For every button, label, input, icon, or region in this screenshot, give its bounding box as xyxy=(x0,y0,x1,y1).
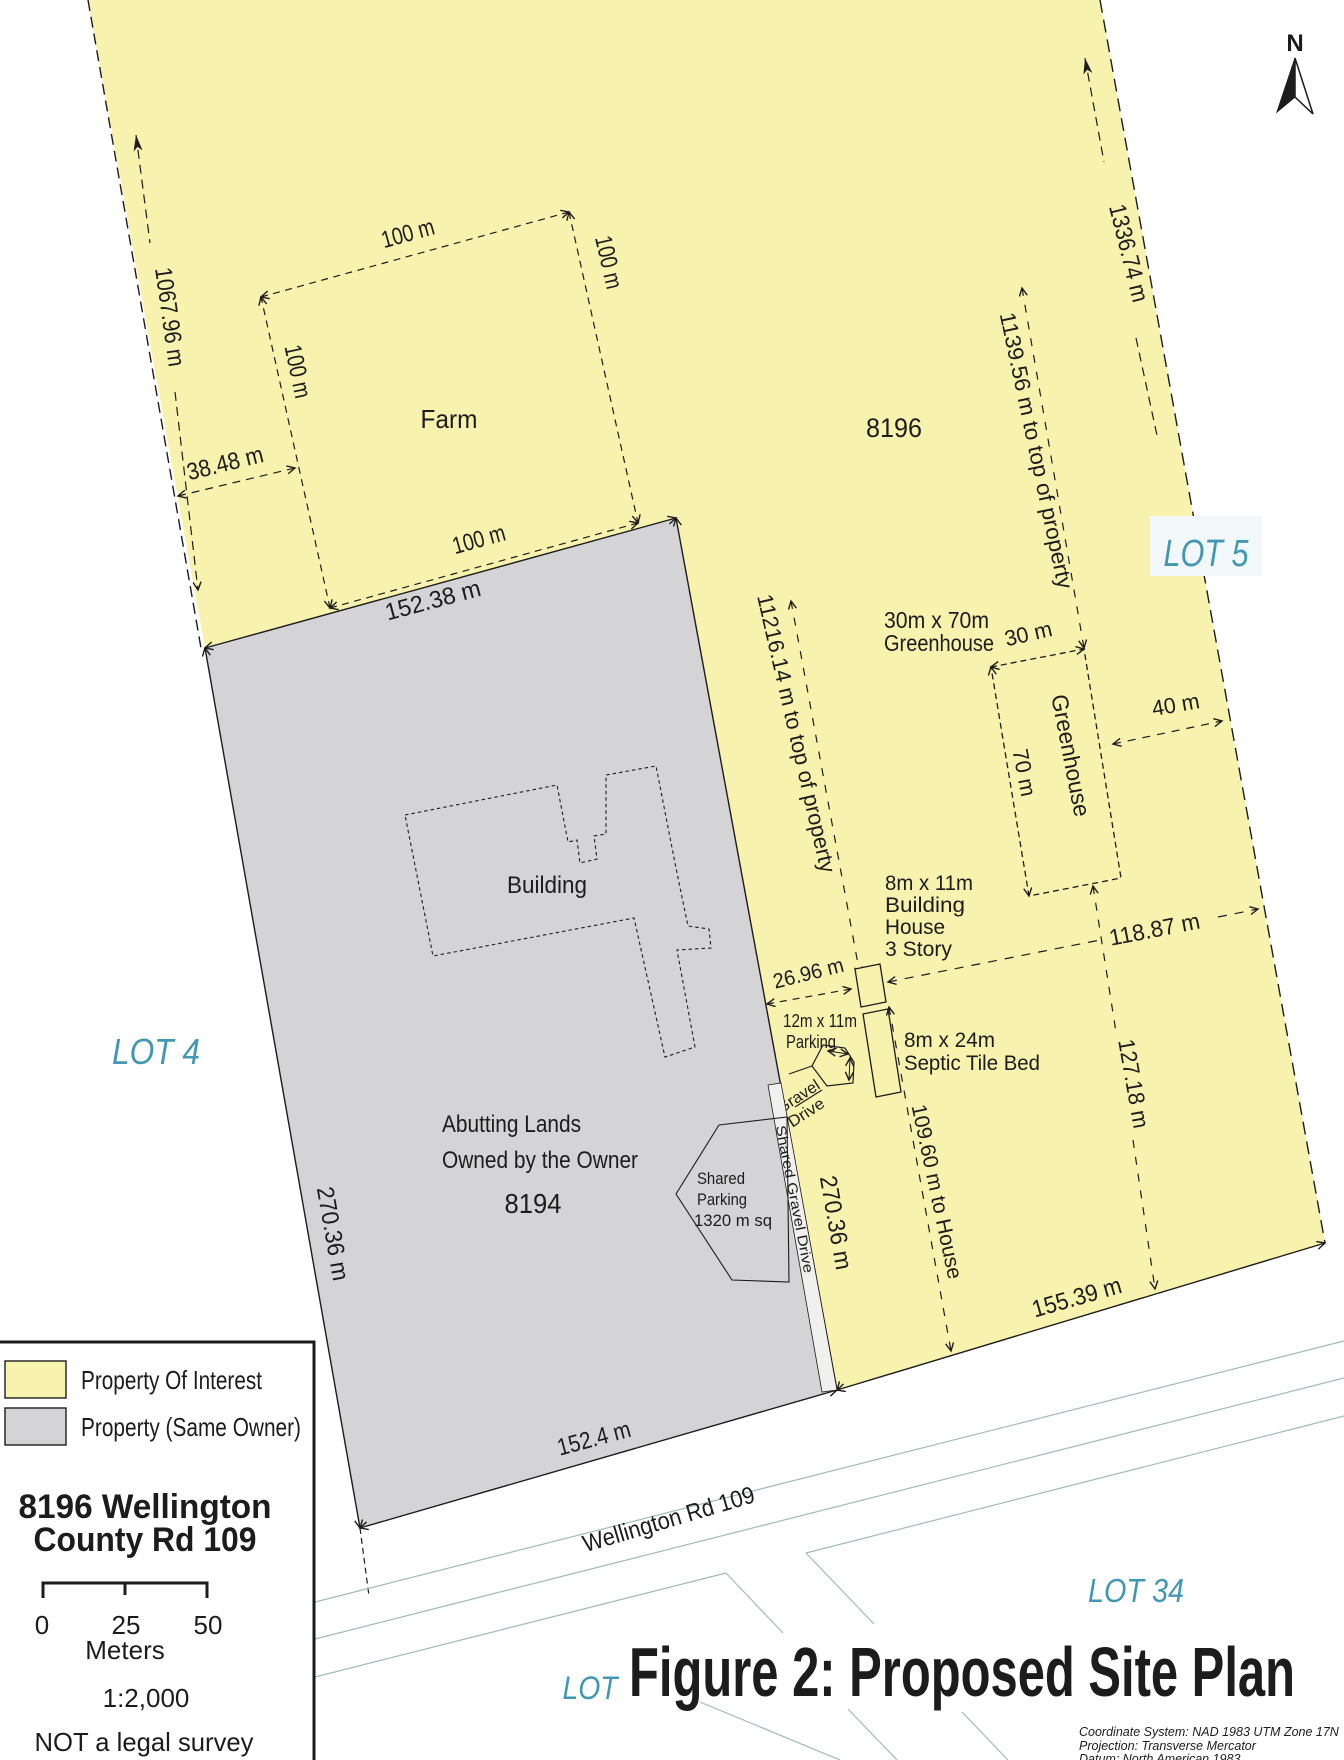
svg-text:8196: 8196 xyxy=(866,413,922,443)
svg-text:50: 50 xyxy=(194,1610,223,1640)
svg-text:Property Of Interest: Property Of Interest xyxy=(81,1365,263,1395)
svg-text:Projection: Transverse Mercato: Projection: Transverse Mercator xyxy=(1079,1739,1257,1753)
svg-text:LOT 4: LOT 4 xyxy=(112,1031,200,1072)
svg-text:House: House xyxy=(885,916,945,939)
svg-text:3 Story: 3 Story xyxy=(885,938,952,961)
svg-text:Meters: Meters xyxy=(85,1635,164,1665)
svg-text:8194: 8194 xyxy=(505,1188,562,1219)
svg-text:12m x 11m: 12m x 11m xyxy=(783,1011,857,1031)
svg-text:LOT 34: LOT 34 xyxy=(1088,1572,1184,1609)
svg-text:Shared: Shared xyxy=(697,1169,745,1188)
svg-text:LOT 5: LOT 5 xyxy=(1164,533,1250,575)
svg-text:8m x 11m: 8m x 11m xyxy=(885,872,973,895)
svg-text:Parking: Parking xyxy=(786,1032,836,1052)
svg-text:Owned by the Owner: Owned by the Owner xyxy=(442,1147,638,1174)
svg-text:Building: Building xyxy=(885,894,965,917)
svg-text:Parking: Parking xyxy=(697,1190,747,1209)
svg-text:Building: Building xyxy=(507,872,587,899)
svg-text:Datum: North American 1983: Datum: North American 1983 xyxy=(1079,1752,1240,1760)
svg-text:LOT: LOT xyxy=(563,1670,620,1706)
svg-text:Figure 2: Proposed Site Plan: Figure 2: Proposed Site Plan xyxy=(629,1633,1295,1711)
svg-text:1:2,000: 1:2,000 xyxy=(103,1683,190,1713)
svg-text:Greenhouse: Greenhouse xyxy=(884,630,994,656)
svg-text:N: N xyxy=(1286,30,1303,57)
svg-text:Property (Same Owner): Property (Same Owner) xyxy=(81,1412,301,1442)
svg-text:Farm: Farm xyxy=(421,404,478,434)
svg-text:0: 0 xyxy=(35,1610,49,1640)
svg-text:Coordinate System: NAD 1983 UT: Coordinate System: NAD 1983 UTM Zone 17N xyxy=(1079,1725,1340,1739)
svg-text:Abutting Lands: Abutting Lands xyxy=(442,1111,581,1138)
svg-text:Septic Tile Bed: Septic Tile Bed xyxy=(904,1052,1040,1075)
svg-text:County Rd 109: County Rd 109 xyxy=(34,1521,257,1559)
svg-text:NOT a legal survey: NOT a legal survey xyxy=(35,1727,254,1757)
svg-text:1320 m sq: 1320 m sq xyxy=(694,1211,772,1230)
svg-text:8m x 24m: 8m x 24m xyxy=(904,1029,995,1052)
